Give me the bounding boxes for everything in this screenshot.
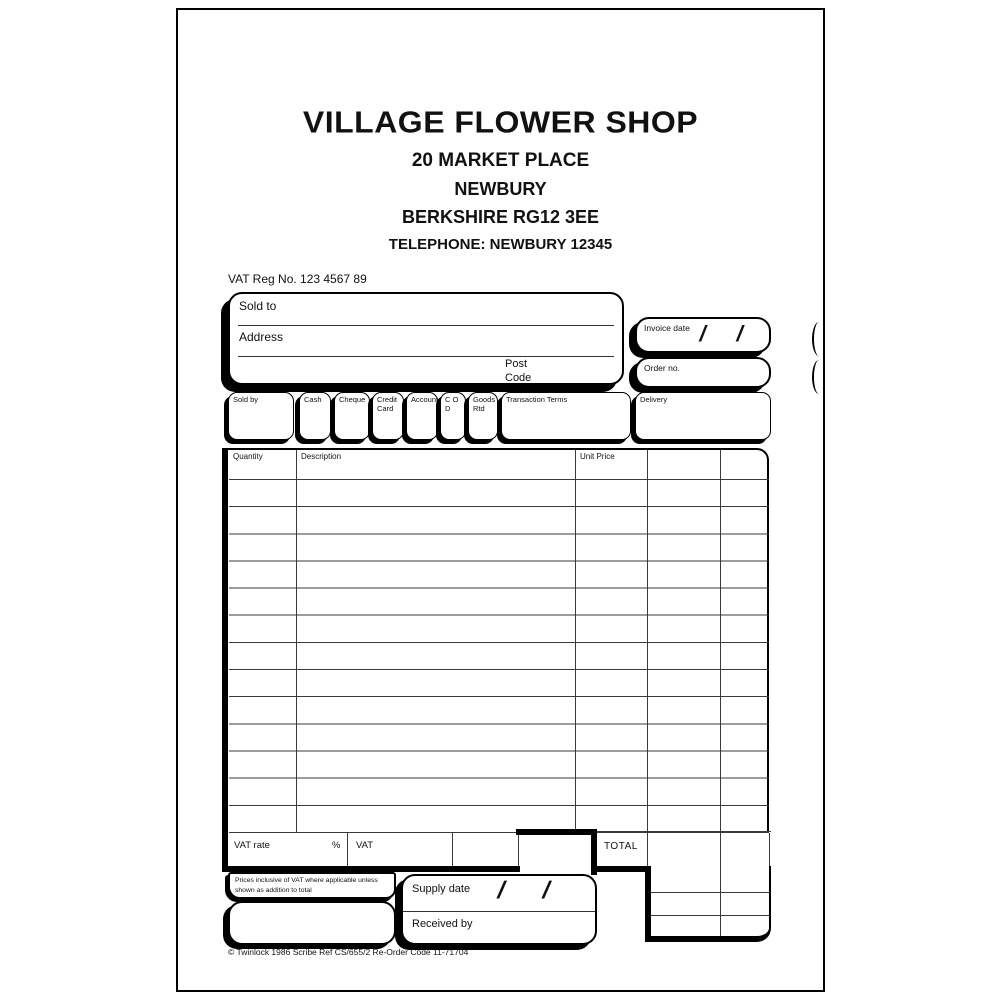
vat-rate-cell-line (347, 833, 348, 867)
amount-grid-line (651, 915, 769, 916)
date-separator: / (540, 877, 554, 905)
vat-rate-label: VAT rate (234, 840, 270, 851)
received-by-label: Received by (412, 918, 473, 930)
header-row-line (229, 479, 769, 480)
cheque-box: Cheque (334, 392, 370, 440)
date-separator: / (734, 321, 746, 347)
vat-small-print: Prices inclusive of VAT where applicable… (228, 872, 396, 899)
address-label: Address (239, 330, 283, 344)
sold-by-box: Sold by (228, 392, 294, 440)
sold-to-box: Sold to Address Post Code (228, 292, 624, 385)
supply-date-label: Supply date (412, 883, 470, 895)
amount-column-line (647, 450, 648, 869)
printer-imprint: © Twinlock 1986 Scribe Ref CS/655/2 Re-O… (228, 947, 468, 957)
cod-box: C O D (440, 392, 466, 440)
percent-label: % (332, 840, 340, 851)
total-row-bottom-edge (591, 866, 651, 872)
delivery-box: Delivery (635, 392, 771, 440)
address-writing-line (238, 356, 614, 357)
amount-grid-column-line (720, 866, 721, 936)
post-code-label: Post Code (505, 358, 531, 386)
goods-returned-box: Goods Rtd (468, 392, 498, 440)
transaction-terms-box: Transaction Terms (501, 392, 631, 440)
date-separator: / (697, 321, 709, 347)
sold-to-writing-line (238, 325, 614, 326)
vat-row-end-line (518, 833, 519, 867)
total-row-top-line (595, 831, 771, 832)
amount-grid-line (651, 892, 769, 893)
invoice-date-field: Invoice date / / (635, 317, 771, 353)
sheet-curl-mark (812, 322, 826, 356)
notch-top-edge (516, 829, 597, 835)
vat-reg-number: VAT Reg No. 123 4567 89 (228, 272, 367, 286)
shop-name: VILLAGE FLOWER SHOP (176, 105, 825, 141)
total-label: TOTAL (604, 841, 638, 852)
shop-address-line2: NEWBURY (176, 179, 825, 200)
shop-header: VILLAGE FLOWER SHOP 20 MARKET PLACE NEWB… (176, 104, 825, 253)
total-amount-grid (645, 866, 771, 942)
supply-received-box: Supply date / / Received by (401, 874, 597, 945)
sheet-curl-mark (812, 360, 826, 394)
table-row-lines (229, 480, 769, 833)
quantity-header: Quantity (233, 452, 263, 461)
sold-to-label: Sold to (239, 299, 276, 313)
order-no-label: Order no. (644, 363, 680, 373)
credit-card-box: Credit Card (372, 392, 404, 440)
unit-price-header: Unit Price (580, 452, 615, 461)
shop-address-line1: 20 MARKET PLACE (176, 150, 825, 172)
supply-received-divider (403, 911, 595, 912)
quantity-column-line (296, 450, 297, 833)
cash-box: Cash (299, 392, 331, 440)
date-separator: / (495, 877, 509, 905)
order-no-field: Order no. (635, 357, 771, 388)
shop-address-line3: BERKSHIRE RG12 3EE (176, 207, 825, 228)
table-left-edge (222, 448, 228, 869)
invoice-date-label: Invoice date (644, 323, 690, 333)
blank-field-box (228, 901, 396, 945)
right-border-segment (769, 833, 770, 867)
vat-label: VAT (356, 840, 373, 851)
unit-price-column-line (575, 450, 576, 833)
account-box: Account (406, 392, 438, 440)
pence-column-line (720, 450, 721, 866)
description-header: Description (301, 452, 341, 461)
shop-telephone: TELEPHONE: NEWBURY 12345 (176, 236, 825, 253)
invoice-form-photo: VILLAGE FLOWER SHOP 20 MARKET PLACE NEWB… (0, 0, 1000, 1000)
vat-cell-line (452, 833, 453, 867)
